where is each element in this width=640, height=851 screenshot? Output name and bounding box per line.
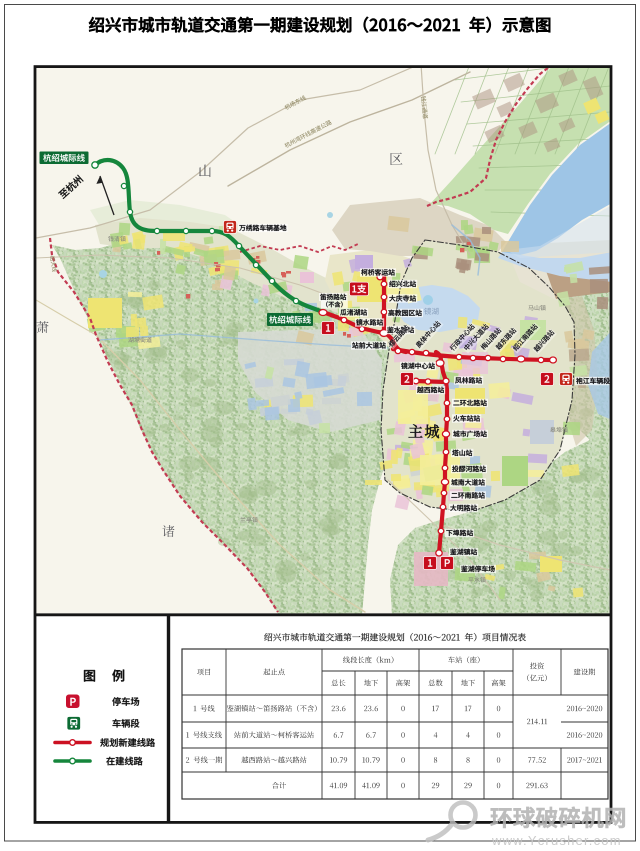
svg-text:www.Ycrusher.com: www.Ycrusher.com bbox=[491, 833, 622, 848]
